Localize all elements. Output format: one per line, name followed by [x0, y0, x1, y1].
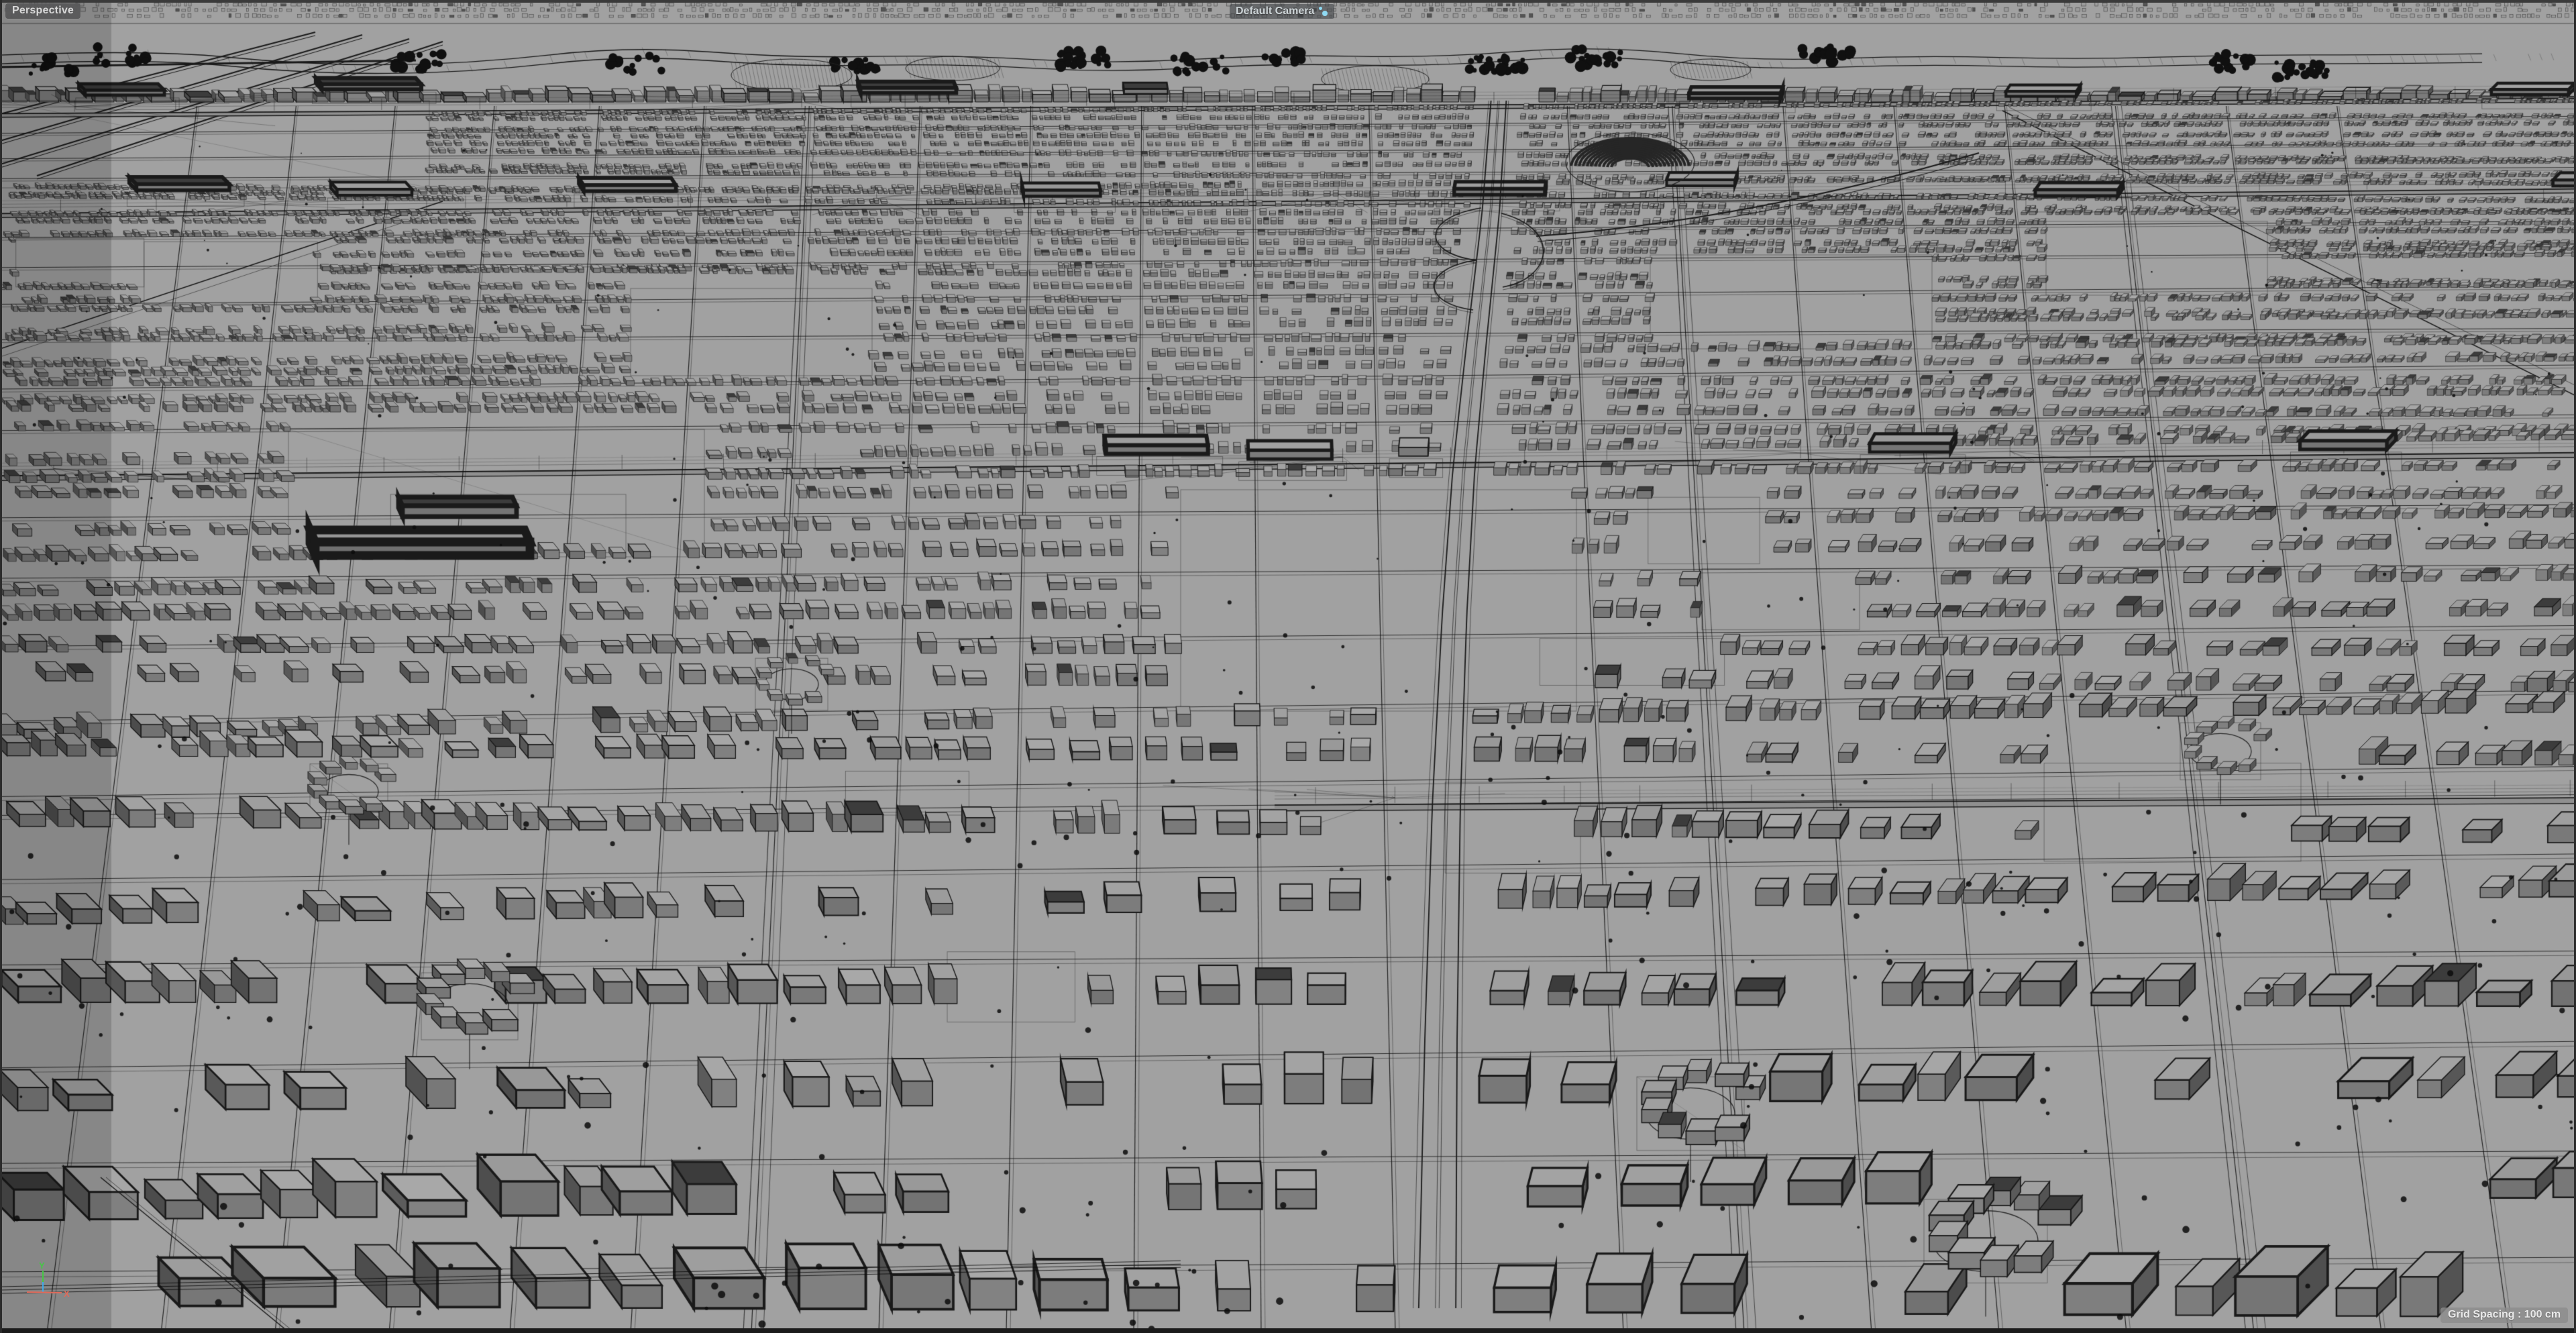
axis-y-label: Y — [39, 1261, 45, 1271]
axis-x-label: X — [64, 1289, 70, 1299]
axis-x-line — [27, 1292, 62, 1293]
viewport-canvas[interactable] — [0, 0, 2576, 1333]
window-edge-left — [0, 0, 2, 1333]
grid-spacing-badge: Grid Spacing : 100 cm — [2440, 1308, 2568, 1323]
window-edge-bottom — [0, 1328, 2576, 1333]
viewport-pov-label[interactable]: Perspective — [5, 3, 80, 19]
window-edge-top — [0, 0, 2576, 3]
world-axis-gizmo: Y X — [20, 1260, 82, 1303]
viewport: Perspective Default Camera Grid Spacing … — [0, 0, 2576, 1333]
camera-label-text: Default Camera — [1236, 5, 1314, 17]
camera-icon — [1318, 6, 1328, 17]
viewport-camera-label[interactable]: Default Camera — [1230, 4, 1334, 19]
